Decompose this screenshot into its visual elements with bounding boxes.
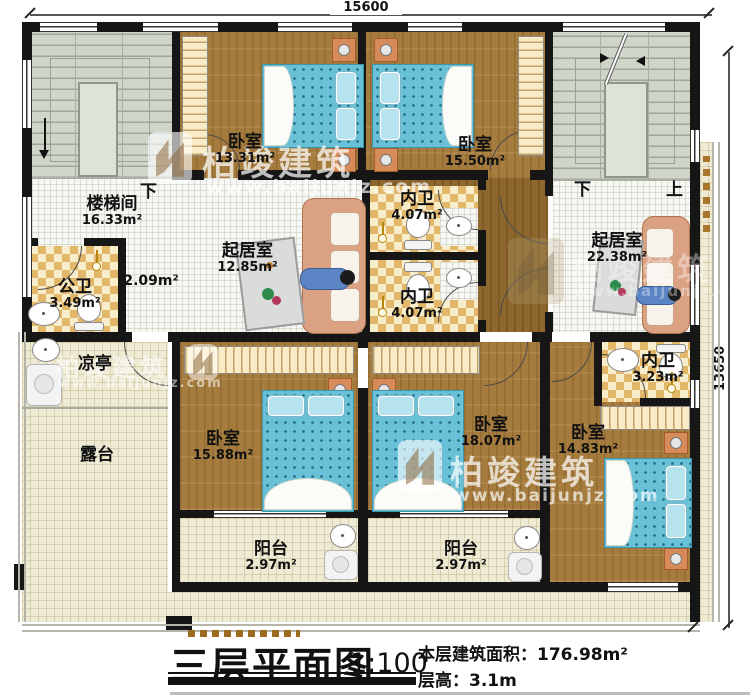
wall	[368, 332, 480, 342]
room-area: 16.33m²	[52, 214, 172, 229]
sink-drain	[341, 534, 344, 537]
sofa-cushion	[330, 288, 360, 322]
watermark-url: www.baijunjz.com	[454, 486, 660, 506]
drawing-scale: 1:100	[350, 648, 428, 679]
room-name: 卧室	[448, 416, 534, 435]
washer-drum	[332, 556, 349, 573]
bed-blanket	[442, 66, 472, 146]
pillow	[380, 108, 400, 140]
pillow	[418, 396, 454, 416]
window	[563, 22, 665, 32]
stair-break-arrow	[600, 53, 609, 63]
room-label-living-right: 起居室 22.38m²	[562, 232, 672, 266]
sofa-cushion	[330, 212, 360, 246]
room-name: 起居室	[562, 232, 672, 251]
room-area: 2.09m²	[118, 274, 184, 290]
wall	[594, 342, 602, 404]
room-label-terrace: 露台	[62, 446, 132, 465]
title-underline-thin	[168, 672, 416, 674]
room-label-bath-low: 内卫 4.07m²	[382, 288, 452, 322]
watermark-url: www.baijunjz.com	[58, 376, 223, 391]
watermark-logo	[188, 344, 218, 380]
nightstand-lamp	[670, 437, 682, 449]
wall	[678, 582, 700, 592]
terrace-bottom-strip	[22, 592, 700, 622]
sink-drain	[42, 312, 45, 315]
room-label-bedroom-bm: 卧室 18.07m²	[448, 416, 534, 450]
wall	[508, 510, 540, 518]
closet	[518, 36, 544, 156]
room-area: 3.23m²	[618, 371, 698, 386]
person-head	[340, 270, 355, 285]
wall	[172, 582, 608, 592]
floor-plan: 15600 13650	[0, 0, 750, 696]
room-area: 2.97m²	[228, 559, 314, 574]
nightstand-lamp	[380, 154, 392, 166]
window	[408, 22, 462, 32]
room-area: 14.83m²	[544, 443, 632, 458]
room-label-balcony-right: 阳台 2.97m²	[418, 540, 504, 574]
flower	[272, 296, 281, 305]
wall	[478, 178, 486, 190]
window	[608, 582, 678, 592]
floor-height-text: 层高：3.1m	[418, 666, 517, 691]
wall	[180, 510, 214, 518]
room-name: 卧室	[544, 424, 632, 443]
watermark-logo-glyph	[406, 447, 434, 484]
room-area: 13.31m²	[200, 152, 290, 167]
pillow	[268, 396, 304, 416]
room-label-pavilion: 凉亭	[60, 355, 130, 374]
room-label-balcony-left: 阳台 2.97m²	[228, 540, 314, 574]
wall	[478, 320, 486, 332]
stair-label-up-right: 上	[666, 175, 683, 200]
wall	[362, 252, 486, 260]
washer-drum	[516, 558, 533, 575]
watermark-url: www.baijunjz.com	[574, 282, 750, 300]
room-label-bedroom-tl: 卧室 13.31m²	[200, 133, 290, 167]
lamp	[92, 262, 101, 271]
room-area: 18.07m²	[448, 435, 534, 450]
railing	[718, 142, 720, 622]
window	[22, 197, 32, 297]
room-area: 15.88m²	[178, 449, 268, 464]
floor-area-text: 本层建筑面积：176.98m²	[418, 640, 628, 665]
room-name: 内卫	[618, 352, 698, 371]
room-name: 凉亭	[60, 355, 130, 374]
wall	[532, 332, 552, 342]
closet	[372, 346, 480, 374]
lamp	[378, 234, 387, 243]
sink-drain	[525, 536, 528, 539]
nightstand-lamp	[670, 553, 682, 565]
stair-label-down-left: 下	[140, 177, 157, 202]
stair-label-down-right: 下	[574, 175, 591, 200]
room-label-public-bath: 公卫 3.49m²	[35, 278, 115, 312]
hall-area-label: 2.09m²	[118, 274, 184, 290]
dim-tick	[24, 7, 35, 18]
watermark-logo-glyph	[193, 349, 212, 375]
railing	[22, 624, 700, 626]
window	[40, 22, 97, 32]
room-area: 4.07m²	[382, 209, 452, 224]
window	[22, 60, 32, 128]
wall	[358, 342, 368, 348]
toilet-tank	[74, 322, 104, 331]
room-area: 3.49m²	[35, 297, 115, 312]
room-name: 起居室	[195, 242, 300, 261]
window	[690, 130, 700, 162]
room-name: 阳台	[228, 540, 314, 559]
room-name: 卧室	[200, 133, 290, 152]
room-area: 2.97m²	[418, 559, 504, 574]
room-name: 卧室	[430, 136, 520, 155]
wall	[530, 170, 553, 180]
terrace-floor	[22, 408, 168, 622]
window	[143, 22, 218, 32]
toilet-tank	[404, 262, 432, 272]
room-name: 公卫	[35, 278, 115, 297]
stair-left-landing	[78, 82, 118, 177]
pavilion-edge	[22, 407, 168, 409]
stair-arrow	[39, 150, 49, 159]
watermark-logo	[508, 238, 564, 304]
toilet-tank	[404, 240, 432, 250]
watermark-logo-glyph	[156, 139, 184, 176]
pillow	[378, 396, 414, 416]
stair-arrow-stem	[44, 118, 46, 152]
pillow	[666, 466, 686, 500]
title-bottom-rule	[170, 692, 750, 695]
room-area: 15.50m²	[430, 155, 520, 170]
pillow	[336, 72, 356, 104]
room-name: 阳台	[418, 540, 504, 559]
watermark-logo	[398, 440, 442, 492]
wall	[640, 398, 690, 406]
wall	[358, 388, 368, 592]
room-area: 4.07m²	[382, 307, 452, 322]
room-label-bedroom-br: 卧室 14.83m²	[544, 424, 632, 458]
room-label-bedroom-bl: 卧室 15.88m²	[178, 430, 268, 464]
wall	[545, 180, 553, 196]
pillow	[308, 396, 344, 416]
dim-tick	[703, 7, 714, 18]
sink-drain	[44, 348, 47, 351]
railing-dots	[703, 156, 710, 232]
stair-right-landing	[604, 82, 648, 178]
room-name: 内卫	[382, 190, 452, 209]
room-area: 22.38m²	[562, 251, 672, 266]
window	[278, 22, 352, 32]
room-label-bedroom-tr: 卧室 15.50m²	[430, 136, 520, 170]
railing	[712, 142, 714, 622]
room-label-bath-up: 内卫 4.07m²	[382, 190, 452, 224]
sink-drain	[457, 276, 460, 279]
stair-break-arrow	[636, 56, 645, 66]
title-underline-thick	[168, 677, 416, 685]
room-area: 12.85m²	[195, 261, 300, 276]
nightstand-lamp	[338, 44, 350, 56]
pillow	[380, 72, 400, 104]
wall	[545, 30, 553, 172]
sink-drain	[457, 224, 460, 227]
pillow	[666, 504, 686, 538]
railing	[18, 332, 20, 622]
watermark-logo-glyph	[518, 247, 554, 295]
room-name: 内卫	[382, 288, 452, 307]
top-dimension-label: 15600	[330, 0, 402, 15]
right-dimension-label: 13650	[713, 336, 733, 400]
wall	[594, 398, 602, 406]
railing	[22, 630, 700, 632]
room-label-living-left: 起居室 12.85m²	[195, 242, 300, 276]
room-label-bath-right: 内卫 3.23m²	[618, 352, 698, 386]
wall	[478, 230, 486, 286]
nightstand-lamp	[380, 44, 392, 56]
washer-drum	[34, 374, 54, 394]
room-name: 卧室	[178, 430, 268, 449]
room-name: 露台	[62, 446, 132, 465]
